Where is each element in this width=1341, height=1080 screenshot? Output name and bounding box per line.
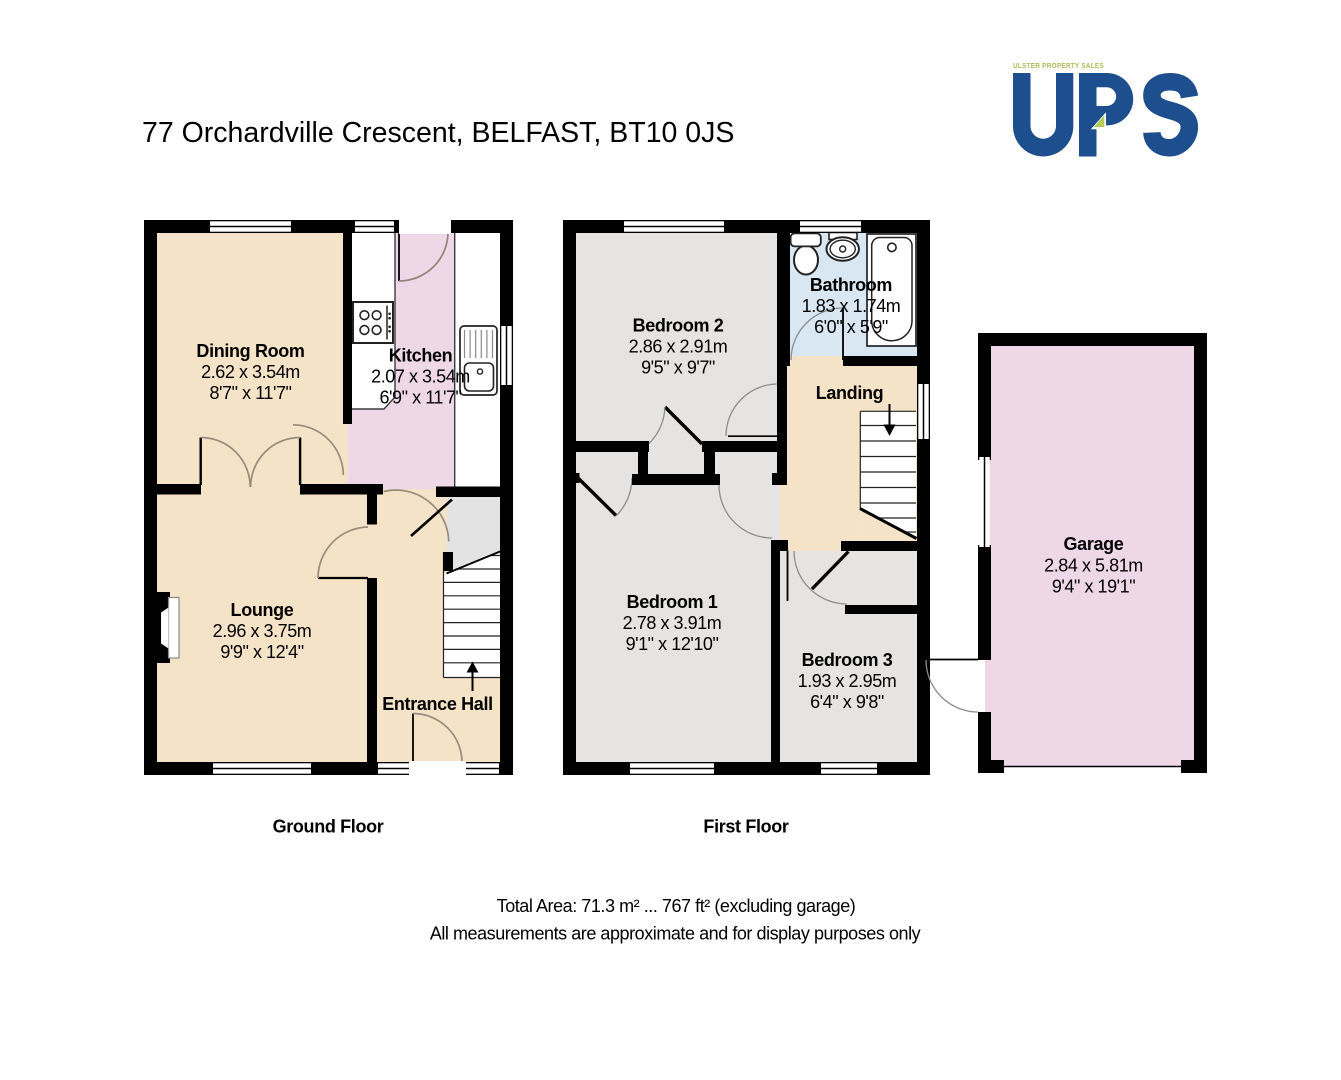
- svg-text:6'4" x 9'8": 6'4" x 9'8": [810, 692, 884, 712]
- svg-text:Bedroom 1: Bedroom 1: [627, 592, 718, 612]
- svg-text:Dining Room: Dining Room: [196, 341, 304, 361]
- svg-text:Bathroom: Bathroom: [810, 275, 892, 295]
- svg-text:Entrance Hall: Entrance Hall: [382, 694, 493, 714]
- svg-text:1.83 x 1.74m: 1.83 x 1.74m: [802, 296, 901, 316]
- svg-text:First Floor: First Floor: [703, 817, 788, 837]
- svg-text:All measurements are approxima: All measurements are approximate and for…: [430, 924, 921, 944]
- svg-text:9'5" x 9'7": 9'5" x 9'7": [641, 358, 715, 378]
- svg-text:9'9" x 12'4": 9'9" x 12'4": [220, 642, 303, 662]
- svg-text:Landing: Landing: [816, 383, 884, 403]
- svg-text:Ground Floor: Ground Floor: [273, 817, 384, 837]
- svg-text:ULSTER PROPERTY SALES: ULSTER PROPERTY SALES: [1013, 61, 1104, 70]
- svg-text:Bedroom 2: Bedroom 2: [633, 316, 724, 336]
- svg-text:2.86 x 2.91m: 2.86 x 2.91m: [629, 337, 728, 357]
- svg-text:2.62 x 3.54m: 2.62 x 3.54m: [201, 362, 300, 382]
- svg-text:6'0" x 5'9": 6'0" x 5'9": [814, 317, 888, 337]
- svg-text:1.93 x 2.95m: 1.93 x 2.95m: [798, 671, 897, 691]
- svg-text:2.84 x 5.81m: 2.84 x 5.81m: [1044, 556, 1143, 576]
- svg-text:Bedroom 3: Bedroom 3: [802, 650, 893, 670]
- svg-text:9'1" x 12'10": 9'1" x 12'10": [626, 634, 719, 654]
- svg-text:Total Area: 71.3 m² ... 767 ft: Total Area: 71.3 m² ... 767 ft² (excludi…: [497, 896, 856, 916]
- svg-text:Kitchen: Kitchen: [389, 346, 453, 366]
- svg-text:8'7" x 11'7": 8'7" x 11'7": [210, 383, 292, 403]
- svg-text:2.78 x 3.91m: 2.78 x 3.91m: [623, 613, 722, 633]
- svg-text:2.07 x 3.54m: 2.07 x 3.54m: [371, 367, 470, 387]
- svg-text:Lounge: Lounge: [231, 600, 294, 620]
- svg-text:6'9" x 11'7": 6'9" x 11'7": [380, 388, 462, 408]
- svg-text:Garage: Garage: [1064, 534, 1124, 554]
- svg-text:9'4" x 19'1": 9'4" x 19'1": [1052, 577, 1135, 597]
- svg-text:2.96 x 3.75m: 2.96 x 3.75m: [213, 621, 312, 641]
- svg-text:77 Orchardville Crescent, BELF: 77 Orchardville Crescent, BELFAST, BT10 …: [142, 117, 734, 149]
